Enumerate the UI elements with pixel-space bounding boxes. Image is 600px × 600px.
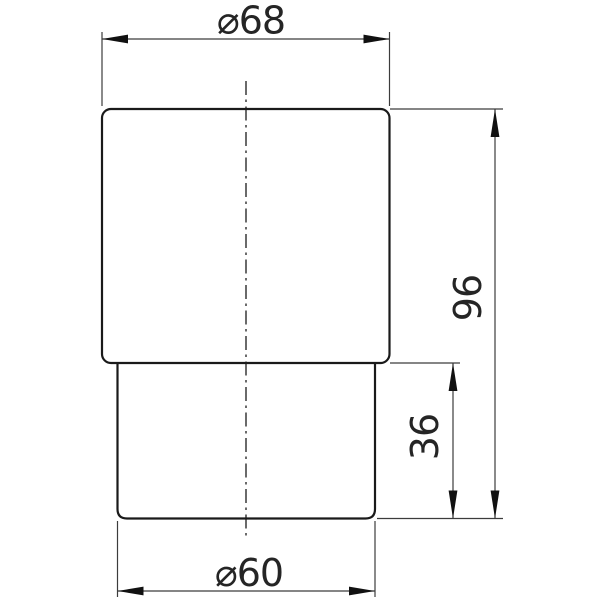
drawing-page: ⌀68 96 36 ⌀60 [0, 0, 600, 600]
arrow-up-icon [491, 109, 500, 137]
arrow-down-icon [449, 491, 458, 519]
dim-label-overall-height: 96 [446, 275, 490, 321]
dimension-line-group [102, 32, 503, 597]
arrow-right-icon [349, 587, 375, 596]
arrow-down-icon [491, 491, 500, 519]
arrow-right-icon [364, 35, 390, 44]
dim-label-bottom-diameter: ⌀60 [215, 551, 283, 595]
arrow-left-icon [118, 587, 144, 596]
dim-label-lower-height: 36 [403, 414, 447, 460]
dimension-label-group: ⌀68 96 36 ⌀60 [215, 0, 490, 595]
arrow-up-icon [449, 363, 458, 391]
arrowhead-group [102, 35, 499, 596]
arrow-left-icon [102, 35, 128, 44]
technical-drawing-canvas: ⌀68 96 36 ⌀60 [0, 0, 600, 600]
dim-label-top-diameter: ⌀68 [217, 0, 285, 43]
